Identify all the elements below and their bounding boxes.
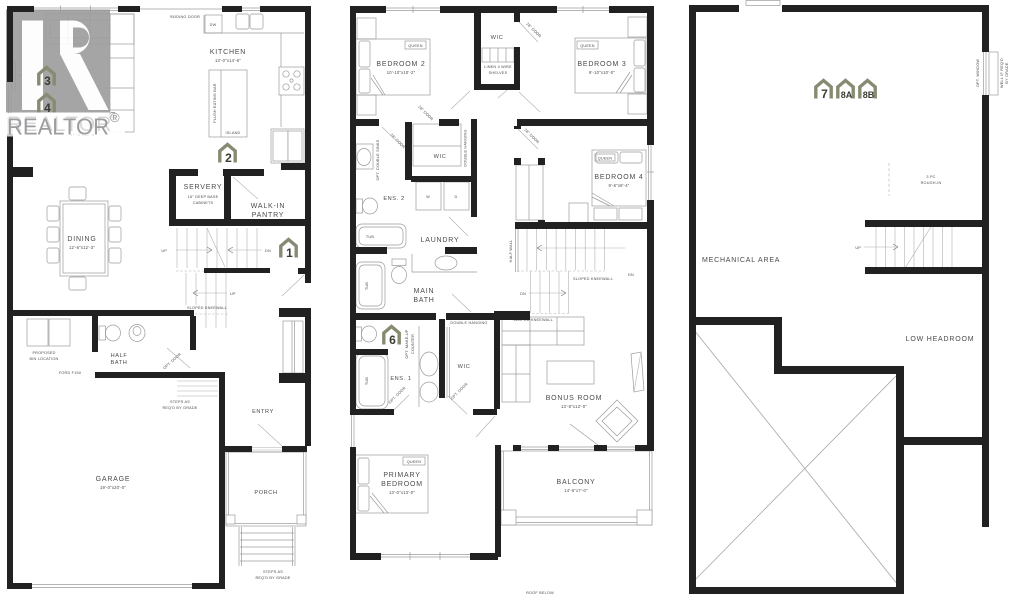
svg-text:13'-8"x13'-0": 13'-8"x13'-0" (561, 404, 587, 409)
svg-text:SHELVES: SHELVES (489, 71, 508, 75)
svg-text:UP: UP (161, 249, 167, 253)
svg-text:4: 4 (44, 101, 51, 115)
svg-text:13'-0"x14'-6": 13'-0"x14'-6" (215, 58, 241, 63)
svg-text:28" DOOR: 28" DOOR (523, 128, 540, 145)
svg-text:GARAGE: GARAGE (96, 476, 131, 483)
svg-text:OPT. DOOR: OPT. DOOR (163, 352, 183, 370)
svg-text:DINING: DINING (67, 236, 96, 243)
svg-text:WELL IF REQ'D: WELL IF REQ'D (1000, 58, 1004, 88)
svg-text:19'-0"x20'-0": 19'-0"x20'-0" (100, 485, 126, 490)
svg-text:DOUBLE HANGING: DOUBLE HANGING (450, 321, 487, 325)
svg-text:UP: UP (855, 246, 861, 250)
svg-text:ISLAND: ISLAND (226, 131, 241, 135)
svg-text:OPT. WINDOW: OPT. WINDOW (976, 59, 980, 88)
svg-text:QUEEN: QUEEN (598, 157, 613, 161)
svg-text:DW: DW (210, 23, 217, 27)
svg-text:14'-6"x7'-0": 14'-6"x7'-0" (564, 488, 588, 493)
svg-text:SLIDING DOOR: SLIDING DOOR (170, 15, 200, 19)
svg-text:LINEN 4 WIRE: LINEN 4 WIRE (484, 65, 512, 69)
svg-text:BEDROOM 2: BEDROOM 2 (376, 61, 425, 68)
svg-text:REALTOR: REALTOR (7, 114, 109, 140)
svg-text:TUB: TUB (366, 235, 374, 239)
svg-text:ROOF BELOW: ROOF BELOW (526, 591, 554, 595)
svg-text:PANTRY: PANTRY (252, 212, 285, 219)
svg-text:UP: UP (230, 292, 236, 296)
svg-text:QUEEN: QUEEN (580, 44, 595, 48)
svg-text:DN: DN (628, 273, 634, 277)
svg-text:OPT. DOOR: OPT. DOOR (450, 382, 469, 401)
svg-text:12'-6"x12'-3": 12'-6"x12'-3" (69, 245, 95, 250)
svg-text:2: 2 (225, 151, 232, 165)
svg-text:PORCH: PORCH (254, 490, 277, 496)
svg-text:BEDROOM 4: BEDROOM 4 (594, 174, 643, 181)
svg-text:8A: 8A (841, 90, 853, 100)
svg-text:ENTRY: ENTRY (252, 409, 274, 415)
svg-text:LOW HEADROOM: LOW HEADROOM (906, 336, 975, 343)
svg-text:REQ'D BY GRADE: REQ'D BY GRADE (162, 406, 197, 410)
svg-text:28" DOOR: 28" DOOR (525, 22, 542, 39)
svg-text:16" DEEP BASE: 16" DEEP BASE (188, 195, 219, 199)
svg-text:3 PC: 3 PC (926, 175, 935, 179)
svg-text:TUB: TUB (365, 377, 369, 385)
svg-text:DN: DN (520, 292, 526, 296)
svg-text:ROUGH-IN: ROUGH-IN (921, 181, 942, 185)
svg-text:9'-6"x9'-4": 9'-6"x9'-4" (609, 183, 630, 188)
svg-text:28" DOOR: 28" DOOR (417, 105, 434, 122)
svg-text:KITCHEN: KITCHEN (210, 49, 246, 56)
svg-text:MAIN: MAIN (414, 288, 435, 295)
svg-text:FORD F150: FORD F150 (59, 371, 81, 375)
svg-text:7: 7 (821, 87, 828, 101)
svg-text:LAUNDRY: LAUNDRY (421, 237, 460, 244)
svg-text:DOUBLE HANGING: DOUBLE HANGING (464, 129, 468, 166)
svg-text:10'-10"x10'-2": 10'-10"x10'-2" (387, 70, 416, 75)
svg-text:COUNTER: COUNTER (411, 334, 415, 354)
svg-text:QUEEN: QUEEN (408, 44, 423, 48)
svg-text:WIC: WIC (434, 154, 447, 160)
svg-text:1: 1 (286, 246, 293, 260)
svg-text:SLOPED KNEEWALL: SLOPED KNEEWALL (187, 306, 227, 310)
svg-text:BATH: BATH (413, 297, 434, 304)
svg-text:BIN LOCATION: BIN LOCATION (30, 357, 59, 361)
svg-text:13'-0"x13'-0": 13'-0"x13'-0" (389, 490, 415, 495)
svg-text:WALK-IN: WALK-IN (251, 203, 286, 210)
svg-text:8B: 8B (863, 90, 875, 100)
svg-text:ENS. 2: ENS. 2 (383, 196, 404, 202)
svg-text:OPT. DOOR: OPT. DOOR (388, 386, 407, 405)
svg-text:®: ® (110, 110, 120, 125)
svg-text:OPT. MAKE-UP: OPT. MAKE-UP (405, 329, 409, 358)
svg-text:ENS. 1: ENS. 1 (390, 376, 411, 382)
svg-text:BATH: BATH (111, 360, 128, 366)
svg-text:STEPS AS: STEPS AS (263, 570, 283, 574)
svg-text:QUEEN: QUEEN (407, 460, 422, 464)
svg-text:OPT. DOUBLE SINKS: OPT. DOUBLE SINKS (376, 139, 380, 180)
svg-text:BY GRADE: BY GRADE (1005, 62, 1009, 83)
svg-text:9'-10"x10'-0": 9'-10"x10'-0" (589, 70, 615, 75)
svg-text:HALF WALL: HALF WALL (509, 240, 513, 263)
svg-text:PRIMARY: PRIMARY (383, 472, 420, 479)
svg-text:WIC: WIC (491, 35, 504, 41)
svg-text:REQ'D BY GRADE: REQ'D BY GRADE (255, 576, 290, 580)
svg-text:6: 6 (389, 333, 396, 347)
svg-text:STEPS AS: STEPS AS (170, 400, 190, 404)
svg-text:CABINETS: CABINETS (193, 201, 214, 205)
svg-text:DN: DN (265, 249, 271, 253)
svg-text:3: 3 (44, 74, 51, 88)
svg-text:W: W (426, 195, 430, 199)
svg-text:BONUS ROOM: BONUS ROOM (546, 395, 603, 402)
svg-text:BEDROOM: BEDROOM (381, 481, 423, 488)
svg-text:MECHANICAL AREA: MECHANICAL AREA (702, 257, 780, 264)
svg-text:WIC: WIC (458, 364, 471, 370)
svg-text:D: D (455, 195, 458, 199)
svg-text:TUB: TUB (365, 282, 369, 290)
svg-text:SLOPED KNEEWALL: SLOPED KNEEWALL (573, 277, 613, 281)
svg-text:SERVERY: SERVERY (184, 184, 223, 191)
svg-text:28" DOOR: 28" DOOR (389, 133, 406, 150)
svg-text:HALF: HALF (111, 353, 128, 359)
svg-text:BEDROOM 3: BEDROOM 3 (577, 61, 626, 68)
svg-text:PROPOSED: PROPOSED (32, 351, 55, 355)
svg-text:BALCONY: BALCONY (556, 479, 595, 486)
svg-text:FLUSH EATING BAR: FLUSH EATING BAR (213, 83, 217, 122)
